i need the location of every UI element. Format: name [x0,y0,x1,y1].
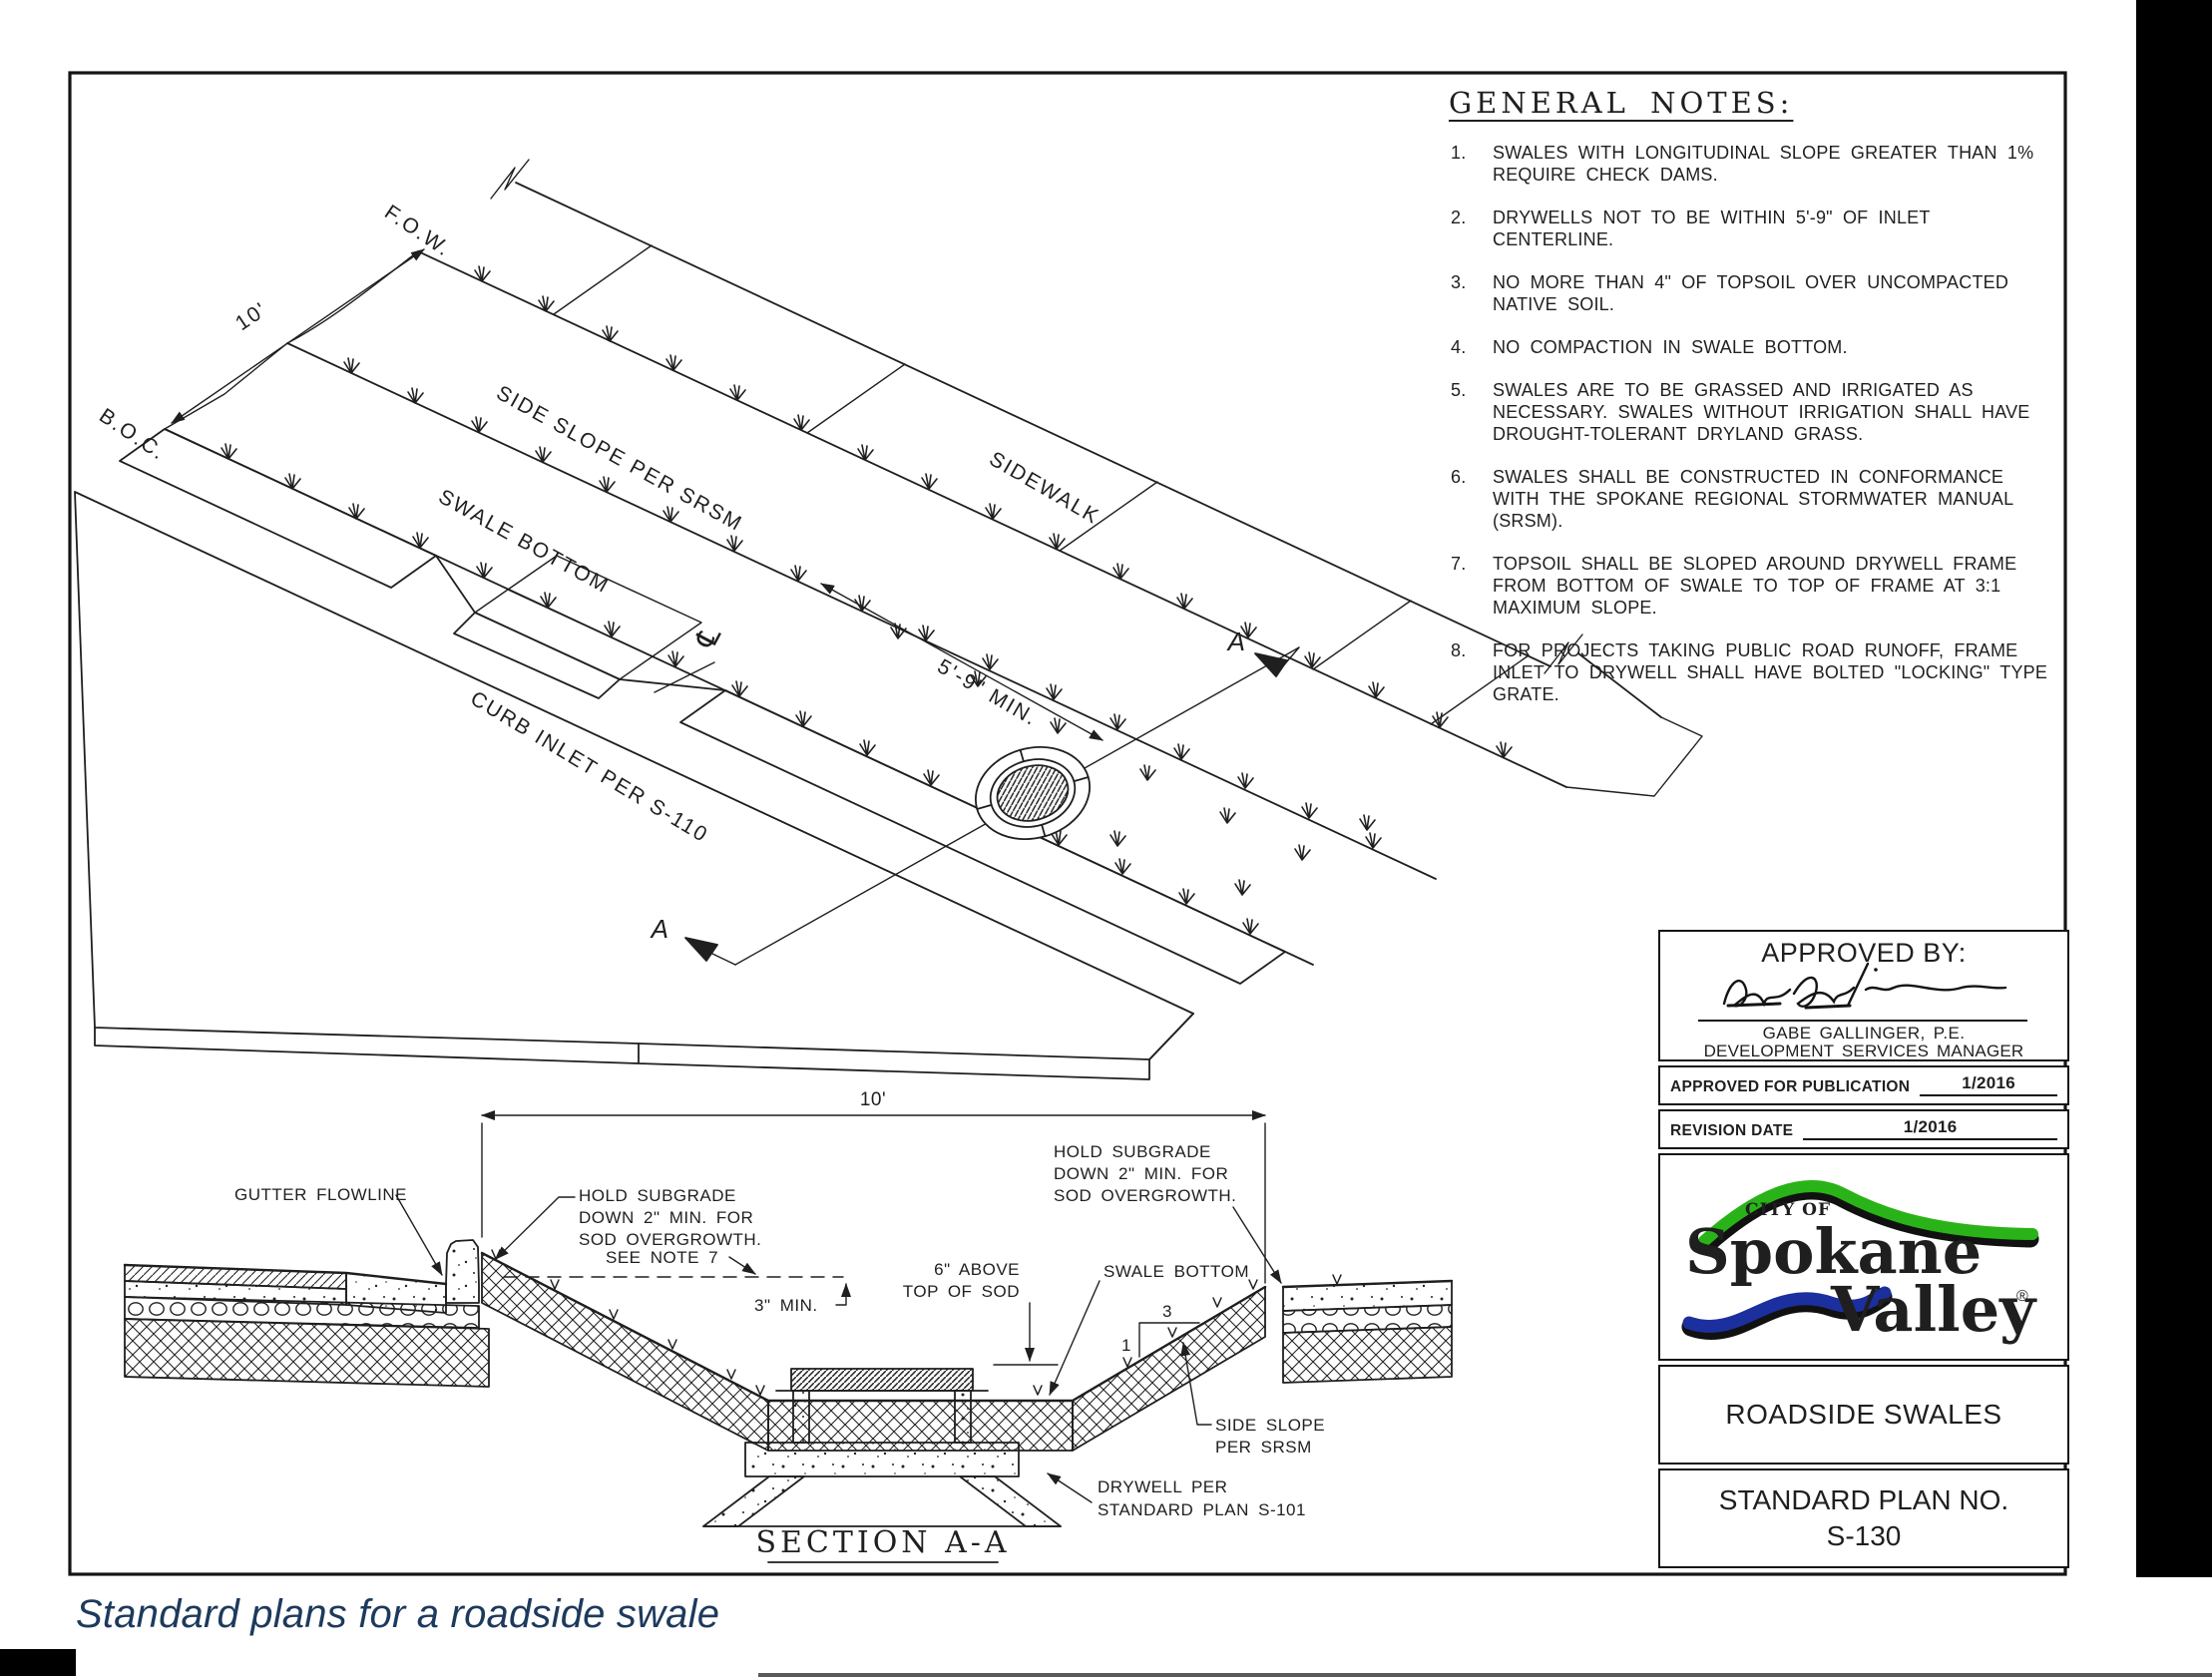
revision-date-label: REVISION DATE [1670,1122,1793,1140]
note-number: 6. [1451,466,1466,488]
section-title: SECTION A-A [755,1525,1010,1560]
dim-10-line [172,249,424,423]
sec-label-hold-right-2: DOWN 2" MIN. FOR [1054,1164,1228,1183]
note-text: NO COMPACTION IN SWALE BOTTOM. [1493,337,1848,357]
bottom-left-block [0,1649,76,1676]
plan-number-box: STANDARD PLAN NO. S-130 [1658,1468,2069,1568]
signee-name: GABE GALLINGER, P.E. [1660,1024,2067,1044]
section-letter-bottom: A [650,914,670,944]
plan-title: ROADSIDE SWALES [1725,1399,2001,1431]
break-symbol-left [491,160,529,199]
section-view: 10' GUTTER FLOWLINE HOLD SUBGRADE DOWN 2… [125,1089,1452,1562]
leader-hold-left [496,1197,575,1259]
signature [1710,958,2019,1022]
svg-text:®: ® [2016,1288,2028,1305]
note-text: NO MORE THAN 4" OF TOPSOIL OVER UNCOMPAC… [1493,272,2008,314]
sec-label-gutter: GUTTER FLOWLINE [234,1185,407,1204]
revision-date-row: REVISION DATE 1/2016 [1658,1109,2069,1149]
leader-swale-bottom [1050,1281,1100,1395]
approved-by-box: APPROVED BY: GABE GALLINGER, P.E. DEVELO… [1658,930,2069,1061]
label-side-slope: SIDE SLOPE PER SRSM [493,381,747,536]
drywell-section [703,1369,1061,1526]
right-edge-band [2136,0,2212,1577]
sec-label-slope-1: 1 [1121,1336,1131,1355]
approved-for-publication-row: APPROVED FOR PUBLICATION 1/2016 [1658,1065,2069,1105]
plan-no: S-130 [1827,1518,1902,1554]
note-text: SWALES WITH LONGITUDINAL SLOPE GREATER T… [1493,143,2033,185]
sec-label-dim10: 10' [860,1089,886,1110]
subgrade-left [125,1319,489,1387]
sec-label-side-slope-1: SIDE SLOPE [1215,1416,1325,1435]
ticks-swale-bottom [793,1395,1078,1399]
general-notes-title: GENERAL NOTES: [1449,92,2060,114]
note-text: SWALES ARE TO BE GRASSED AND IRRIGATED A… [1493,380,2030,444]
label-sidewalk: SIDEWALK [986,447,1105,529]
sec-label-hold-right-1: HOLD SUBGRADE [1054,1142,1211,1161]
plan-title-box: ROADSIDE SWALES [1658,1365,2069,1465]
note-number: 5. [1451,379,1466,401]
sec-label-drywell-1: DRYWELL PER [1098,1477,1227,1496]
general-note-1: 1.SWALES WITH LONGITUDINAL SLOPE GREATER… [1449,142,2060,186]
approved-for-publication-date: 1/2016 [1962,1073,2015,1092]
note-text: SWALES SHALL BE CONSTRUCTED IN CONFORMAN… [1493,467,2013,531]
sec-label-see-note: SEE NOTE 7 [606,1248,718,1267]
note-number: 8. [1451,639,1466,661]
sec-label-slope-3: 3 [1162,1302,1172,1321]
general-notes: GENERAL NOTES: 1.SWALES WITH LONGITUDINA… [1449,92,2060,726]
sec-label-drywell-2: STANDARD PLAN S-101 [1098,1500,1306,1519]
standard-plan-sheet: F.O.W. 10' B.O.C. SIDE SLOPE PER SRSM SW… [0,0,2212,1677]
signee-title: DEVELOPMENT SERVICES MANAGER [1660,1042,2067,1061]
leader-see-note [729,1257,755,1274]
approved-for-publication-label: APPROVED FOR PUBLICATION [1670,1078,1910,1096]
sec-label-hold-left-2: DOWN 2" MIN. FOR [579,1208,753,1227]
sec-label-hold-left-3: SOD OVERGROWTH. [579,1230,761,1249]
note-number: 1. [1451,142,1466,164]
bracket-3min [836,1284,846,1305]
curb [446,1240,479,1303]
sec-label-swale-bottom: SWALE BOTTOM [1104,1262,1249,1281]
general-note-8: 8.FOR PROJECTS TAKING PUBLIC ROAD RUNOFF… [1449,639,2060,705]
signature-line [1698,1020,2027,1022]
title-block: APPROVED BY: GABE GALLINGER, P.E. DEVELO… [1658,930,2069,1572]
general-note-3: 3.NO MORE THAN 4" OF TOPSOIL OVER UNCOMP… [1449,271,2060,315]
sec-label-hold-right-3: SOD OVERGROWTH. [1054,1186,1236,1205]
right-ground-corner [1566,717,1702,796]
general-note-7: 7.TOPSOIL SHALL BE SLOPED AROUND DRYWELL… [1449,553,2060,619]
city-logo-box: CITY OF Spokane Valley ® [1658,1153,2069,1361]
plan-no-label: STANDARD PLAN NO. [1719,1482,2008,1518]
leader-drywell [1048,1473,1092,1502]
general-note-4: 4.NO COMPACTION IN SWALE BOTTOM. [1449,336,2060,358]
note-number: 2. [1451,207,1466,228]
section-letter-top: A [1226,627,1247,656]
sec-label-3min: 3" MIN. [754,1296,818,1315]
label-dim-10: 10' [231,297,272,335]
leader-gutter-flowline [396,1195,442,1275]
note-text: TOPSOIL SHALL BE SLOPED AROUND DRYWELL F… [1493,554,2016,618]
sec-label-6above-2: TOP OF SOD [903,1282,1020,1301]
note-number: 7. [1451,553,1466,575]
sec-label-6above-1: 6" ABOVE [934,1260,1020,1279]
subgrade-right [1283,1327,1452,1383]
general-note-5: 5.SWALES ARE TO BE GRASSED AND IRRIGATED… [1449,379,2060,445]
sec-label-hold-left-1: HOLD SUBGRADE [579,1186,736,1205]
svg-text:Valley: Valley [1830,1273,2037,1346]
note-number: 3. [1451,271,1466,293]
bottom-edge-line [758,1673,2212,1677]
general-note-6: 6.SWALES SHALL BE CONSTRUCTED IN CONFORM… [1449,466,2060,532]
general-note-2: 2.DRYWELLS NOT TO BE WITHIN 5'-9" OF INL… [1449,207,2060,250]
note-text: FOR PROJECTS TAKING PUBLIC ROAD RUNOFF, … [1493,640,2047,704]
revision-date-value: 1/2016 [1904,1117,1958,1136]
label-dim-5-9: 5'-9" MIN. [934,654,1042,730]
note-text: DRYWELLS NOT TO BE WITHIN 5'-9" OF INLET… [1493,208,1930,249]
spokane-valley-logo: CITY OF Spokane Valley ® [1679,1159,2048,1355]
sec-label-side-slope-2: PER SRSM [1215,1438,1312,1457]
note-number: 4. [1451,336,1466,358]
dim-5-9-line [821,584,1103,740]
figure-caption: Standard plans for a roadside swale [76,1592,719,1637]
subgrade-slope-left [482,1253,768,1451]
